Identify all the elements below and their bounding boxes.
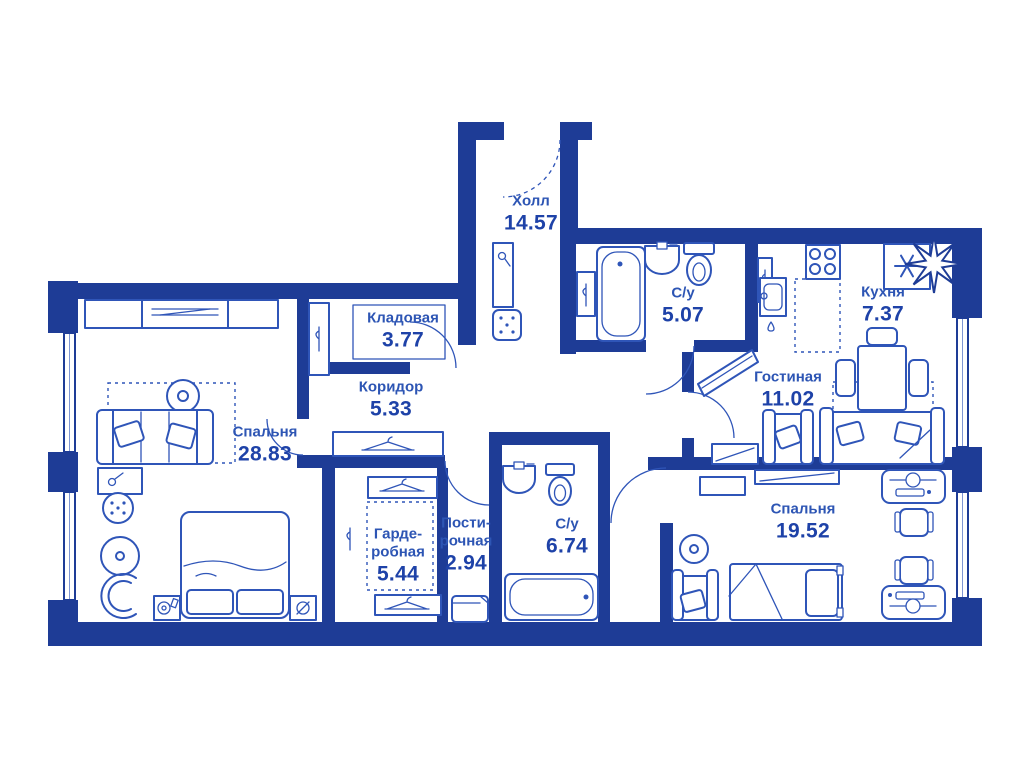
room-name: Пости- рочная xyxy=(440,514,493,550)
room-area: 11.02 xyxy=(754,386,822,411)
room-label-storage: Кладовая 3.77 xyxy=(367,309,439,352)
room-area: 5.44 xyxy=(371,561,425,586)
room-label-bedroom-2: Спальня 19.52 xyxy=(771,500,836,543)
nightstand-left xyxy=(154,596,180,620)
living-sofa xyxy=(820,408,944,464)
desk-1 xyxy=(882,470,945,503)
room-area: 5.33 xyxy=(359,396,424,421)
water-drop-icon xyxy=(768,322,774,331)
stove-icon xyxy=(806,245,840,279)
room-label-laundry: Пости- рочная 2.94 xyxy=(440,514,493,575)
window-left-lower xyxy=(64,492,75,600)
room-name: Спальня xyxy=(233,423,298,441)
hall-closet xyxy=(493,243,513,307)
living-door-arc xyxy=(688,392,734,438)
side-table xyxy=(167,380,199,412)
toilet xyxy=(684,243,714,285)
hall-pouf xyxy=(493,310,521,340)
sink xyxy=(645,242,679,274)
room-area: 5.07 xyxy=(662,302,704,327)
room-label-bedroom-1: Спальня 28.83 xyxy=(233,423,298,466)
room-label-corridor: Коридор 5.33 xyxy=(359,378,424,421)
washing-machine xyxy=(452,596,488,622)
dresser xyxy=(98,468,142,494)
room-area: 3.77 xyxy=(367,327,439,352)
armchair-2 xyxy=(672,570,718,620)
floor-plan-svg xyxy=(0,0,1024,768)
room-label-kitchen: Кухня 7.37 xyxy=(861,283,905,326)
room-name: Кухня xyxy=(861,283,905,301)
room-area: 2.94 xyxy=(440,550,493,575)
lounge-chair xyxy=(101,574,136,618)
hanger-closet xyxy=(309,303,329,375)
hook-icon xyxy=(347,528,350,550)
double-bed xyxy=(181,512,289,618)
nightstand-right xyxy=(290,596,316,620)
room-name: С/у xyxy=(662,284,704,302)
bedroom2-door-arc xyxy=(611,468,666,523)
room-area: 7.37 xyxy=(861,301,905,326)
room-label-bathroom-1: С/у 5.07 xyxy=(662,284,704,327)
wardrobe-cabinets xyxy=(85,300,278,328)
room-name: Холл xyxy=(504,192,558,210)
desk-chair-2 xyxy=(895,557,933,584)
mirror-closet xyxy=(698,350,758,396)
pouf xyxy=(103,493,133,523)
bathtub2 xyxy=(505,574,598,620)
tv-board xyxy=(755,470,839,484)
bathtub xyxy=(597,247,645,341)
desk-chair-1 xyxy=(895,509,933,536)
sofa xyxy=(97,410,213,464)
room-name: Кладовая xyxy=(367,309,439,327)
kitchen-sink xyxy=(760,278,786,316)
hanger-rail-bottom xyxy=(375,595,441,615)
hanger-rail-top xyxy=(368,477,437,498)
room-label-living-room: Гостиная 11.02 xyxy=(754,368,822,411)
counter-outline xyxy=(795,279,840,352)
room-name: Коридор xyxy=(359,378,424,396)
toilet2 xyxy=(546,464,574,505)
single-bed xyxy=(729,564,843,620)
bedroom2-furniture xyxy=(672,470,945,620)
laundry-door-arc xyxy=(445,461,489,505)
room-label-bathroom-2: С/у 6.74 xyxy=(546,515,588,558)
floor-plan: Холл 14.57 Кладовая 3.77 Коридор 5.33 Сп… xyxy=(0,0,1024,768)
room-name: Гарде- робная xyxy=(371,525,425,561)
window-right-lower xyxy=(957,492,968,598)
room-name: Спальня xyxy=(771,500,836,518)
wall-clock xyxy=(680,535,708,563)
floor-lamp xyxy=(101,537,139,575)
window-right-upper xyxy=(957,318,968,447)
north-arrow-icon xyxy=(905,235,963,293)
dining-set xyxy=(836,328,928,410)
room-label-hall: Холл 14.57 xyxy=(504,192,558,235)
corridor-hanger-rail xyxy=(333,432,443,456)
room-label-wardrobe: Гарде- робная 5.44 xyxy=(371,525,425,586)
room-area: 19.52 xyxy=(771,518,836,543)
room-area: 28.83 xyxy=(233,441,298,466)
window-left-upper xyxy=(64,333,75,452)
vent-box-2 xyxy=(700,477,745,495)
entrance-door-arc xyxy=(503,140,560,197)
room-name: Гостиная xyxy=(754,368,822,386)
armchair xyxy=(763,410,813,464)
room-name: С/у xyxy=(546,515,588,533)
vent-box xyxy=(577,272,595,316)
tv-cabinet xyxy=(712,444,758,464)
room-area: 14.57 xyxy=(504,210,558,235)
room-area: 6.74 xyxy=(546,533,588,558)
desk-2 xyxy=(882,586,945,619)
sink2 xyxy=(503,462,535,493)
